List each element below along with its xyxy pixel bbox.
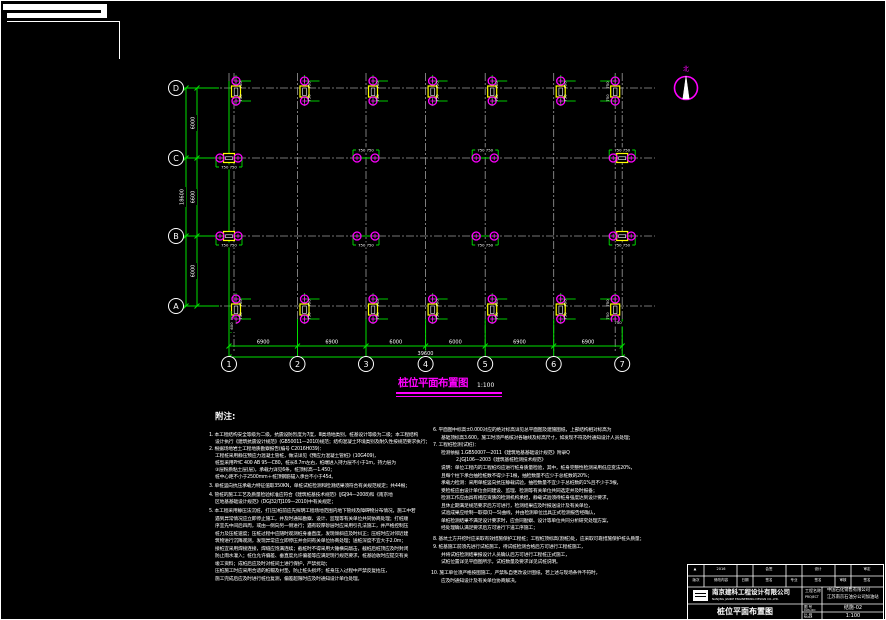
title-block-cell-text: 签名: [864, 579, 871, 583]
dim-total: 18600: [180, 189, 186, 205]
note-line: 基础顶标高3.600，施工时须严格核对各轴线及标高尺寸，如发现不符及时通知设计人…: [441, 437, 633, 442]
grid-bubble-label: 1: [226, 360, 231, 369]
note-line: 承载力检测：采用单桩竖向抗压静载试验，抽检数量不宜少于总桩数的1%且不少于3根，: [441, 482, 621, 487]
note-line: 并将试桩检测结果报设计人员确认后方可进行工程桩正式施工，: [441, 554, 570, 559]
note-line: 4. 管桩的施工工艺及质量检验标准应符合《建筑桩基技术规范》(JGJ94—200…: [209, 494, 393, 499]
dim-value: 6000: [191, 265, 197, 278]
note-line: 2. 根据场地岩土工程地质勘察报告(编号 C2016H039)：: [209, 448, 324, 453]
note-line: 桩力及压桩速度；压桩过程中应随时观测桩身垂直度，发现倾斜应及时纠正；压桩时应对邻…: [215, 533, 408, 538]
note-line: 试验成果应绘制—取得(Q—S)曲线，并由检测单位出具正式检测报告经确认，: [441, 512, 598, 517]
pile-dim-value: 750 750: [614, 148, 630, 153]
dim-value: 6000: [191, 117, 197, 130]
pile-dim-value: 750: [563, 94, 568, 102]
title-block: 南京建科工程设计有限公司 NANJING JIANKE ENGINEERING …: [687, 564, 884, 620]
note-line: 应及时通知设计及有关单位协商解决。: [441, 580, 519, 585]
note-line: 1. 本工程结构安全等级为二级，抗震设防烈度为7度，Ⅲ类场地类别，桩基设计等级为…: [209, 434, 418, 439]
pile-dim-value: 750 750: [358, 243, 374, 248]
axis-bubble-label: D: [173, 84, 179, 93]
edge-dim-value: 600: [229, 322, 234, 330]
scale-label-en: SCALE: [804, 617, 812, 620]
dim-value: 6000: [389, 340, 402, 346]
pile-cap: [617, 232, 628, 241]
pile-dim-value: 750: [307, 312, 312, 320]
pile-dim-value: 750: [307, 81, 312, 89]
note-line: 单桩检测结果不满足设计要求时，应会同勘察、设计等单位共同分析研究处理方案，: [441, 520, 611, 525]
note-line: 检测依据 1.GB50007—2011《建筑地基基础设计规范》附录Q: [441, 452, 570, 457]
pile-dim-value: 750: [435, 81, 440, 89]
note-line: 区地基基础设计规范》(DGJ32/TJ109—2010)中有关规定；: [215, 501, 336, 506]
note-line: 说明：单位工程内的工程桩均应进行桩身质量检验，其中，桩身完整性检测采用低应变法2…: [441, 467, 635, 472]
pile-dim-value: 750: [605, 299, 610, 307]
project-name-line1: 中国石化销售有限公司: [827, 589, 870, 593]
note-line: 施工完成后应及时进行桩位复测，偏差超限时应及时通知设计单位处理。: [215, 578, 362, 583]
pile-dim-value: 750: [435, 312, 440, 320]
title-block-cell-text: 审核: [840, 579, 847, 583]
dwg-no-value: 结施-02: [824, 606, 882, 611]
note-line: 3. 单桩竖向抗压承载力特征值取350KN，单桩试桩检测和检测结果须符合有关规范…: [209, 485, 410, 490]
pile-dim-value: 750 750: [221, 243, 237, 248]
pile-dim-value: 750: [238, 81, 243, 89]
plan-title-underline-1: [396, 392, 502, 394]
pile-dim-value: 750: [563, 81, 568, 89]
note-line: 8. 基坑土方开挖时应采取有效措施保护工程桩；工程桩顶标高(割桩)处，应采取可靠…: [433, 538, 644, 543]
axis-bubble-label: B: [173, 232, 179, 241]
dwg-no-label-en: DWG.NO: [804, 610, 815, 613]
dim-value: 6900: [257, 340, 270, 346]
pile-dim-value: 750: [375, 299, 380, 307]
project-label: 工程名称: [805, 589, 821, 593]
note-line: 序宜先中间后四周，或由一侧向另一侧进行；遇有较厚砂层时应采用引孔法施工，并严格控…: [215, 525, 408, 530]
note-line: 遇到异常情况应立即停止施工，并及时通知勘察、设计、监理等有关单位共同协商处理；打…: [215, 518, 408, 523]
scale-value: 1:100: [824, 614, 882, 619]
axis-bubble-label: C: [173, 154, 179, 163]
pile-dim-value: 750: [605, 81, 610, 89]
project-label-en: PROJECT: [805, 596, 819, 599]
note-line: 防止雨水灌入；桩位允许偏差、垂直度允许偏差等应满足现行规范要求，桩基验收时应提交…: [215, 555, 408, 560]
title-block-cell-text: 日期: [742, 579, 749, 583]
pile-dim-value: 750 750: [477, 243, 493, 248]
title-block-cell-text: 修改内容: [714, 579, 728, 583]
grid-bubble-label: 7: [620, 360, 625, 369]
notes-header: 附注:: [215, 413, 235, 422]
company-logo-slit: [695, 593, 706, 594]
note-line: 且休止期满足规范要求后方可进行，检测结果应及时报送设计及有关单位，: [441, 505, 593, 510]
note-line: 2.JGJ106—2003《建筑基桩检测技术规范》: [456, 459, 546, 464]
pile-dim-value: 750: [435, 94, 440, 102]
dim-value: 6900: [582, 340, 595, 346]
note-line: 7. 工程桩检测(试桩)：: [433, 444, 479, 449]
grid-bubble-label: 2: [295, 360, 300, 369]
note-line: 桩型采用PHC 400 AB 95—C80，桩长8.7m左右，桩端进入持力层不小…: [215, 462, 396, 467]
pile-cap: [617, 154, 628, 163]
pile-dim-value: 750: [605, 94, 610, 102]
pile-dim-value: 750 750: [358, 148, 374, 153]
pile-dim-value: 750: [238, 312, 243, 320]
pile-dim-value: 750 750: [221, 165, 237, 170]
pile-dim-value: 750: [375, 81, 380, 89]
pile-dim-value: 750: [307, 299, 312, 307]
title-block-cell-text: 设计: [815, 568, 822, 572]
note-line: 压桩施工时应采用合适的桩帽及衬垫，防止桩头损坏；桩身压入过程中严禁反复抬压，: [215, 570, 390, 575]
pile-dim-value: 750: [375, 312, 380, 320]
note-line: 受检桩应由设计单位会同建设、监理、检测等有关单位共同选定并及时报备；: [441, 490, 597, 495]
pile-dim-value: 750: [435, 299, 440, 307]
note-line: ③层粉质粘土层(层)，承载力详见6条，桩顶标高—1.450；: [215, 469, 335, 474]
title-block-cell-text: 会签: [766, 568, 773, 572]
dim-value: 6600: [191, 191, 197, 204]
pile-dim-value: 750: [605, 312, 610, 320]
north-label: 北: [683, 65, 689, 73]
dim-value: 6900: [513, 340, 526, 346]
pile-dim-value: 750: [238, 94, 243, 102]
title-block-cell-text: 签名: [766, 579, 773, 583]
plan-title-scale: 1:100: [477, 383, 494, 389]
pile-dim-value: 750: [375, 94, 380, 102]
title-block-cell-text: 专业: [791, 579, 798, 583]
title-block-cell-text: 2016: [717, 568, 726, 572]
pile-dim-value: 750: [238, 299, 243, 307]
pile-dim-value: 750: [494, 312, 499, 320]
axis-bubble-label: A: [173, 302, 179, 311]
title-block-cell-text: 审定: [864, 568, 871, 572]
pile-dim-value: 750: [494, 299, 499, 307]
grid-bubble-label: 6: [551, 360, 556, 369]
note-line: 10. 施工单位须严格按图施工，严禁私自更改设计图纸，若上述与现场条件不符时，: [431, 572, 600, 577]
cad-sheet[interactable]: 6900690060006000690069003960060006600600…: [0, 0, 886, 620]
north-arrow-needle: [683, 76, 689, 99]
note-line: 接桩宜采用焊接连接，焊缝应饱满连续；截桩时不得采用大锤横向敲击，截桩后桩顶应及时…: [215, 548, 408, 553]
plan-title-underline-2: [396, 396, 502, 397]
note-line: 9. 桩基施工前须先进行试桩施工，待试桩检测合格后方可进行工程桩施工，: [433, 546, 586, 551]
pile-dim-value: 750: [307, 94, 312, 102]
note-line: 检测工作应由具有相应资质的检测机构承担，静载试验须待桩身强度达到设计要求，: [441, 497, 611, 502]
grid-bubble-label: 4: [423, 360, 428, 369]
company-logo-slit2: [695, 596, 706, 597]
plan-title: 桩位平面布置图: [398, 378, 468, 389]
note-line: 桩中心距不小于2500mm＋桩顶钢筋锚入承台不小于45d。: [215, 476, 336, 481]
grid-bubble-label: 5: [483, 360, 488, 369]
note-line: 筑物进行沉降观测，发现异常应立即停压并会同有关单位协商处理；送桩深度不宜大于2.…: [215, 540, 406, 545]
pile-dim-value: 750 750: [477, 148, 493, 153]
pile-dim-value: 750: [563, 312, 568, 320]
note-line: 工程桩采用静压预应力混凝土管桩，做法详见《预应力混凝土管桩》(10G409)，: [215, 455, 379, 460]
pile-cap: [224, 154, 235, 163]
dim-value: 6000: [449, 340, 462, 346]
note-line: 竣工资料；成桩后应及时对桩间土进行保护，严禁扰动；: [215, 563, 330, 568]
pile-dim-value: 750: [494, 81, 499, 89]
note-line: 试桩位置详见平面图所示，试桩数量及要求详见试桩说明。: [441, 561, 561, 566]
pile-cap: [224, 232, 235, 241]
pile-dim-value: 750: [563, 299, 568, 307]
note-line: 6. 平面图中标高±0.000对应的绝对标高详见总平面图及建施图纸，上部结构相对…: [433, 429, 611, 434]
grid-bubble-label: 3: [363, 360, 368, 369]
dim-value: 6900: [325, 340, 338, 346]
note-line: 5. 本工程采用静压法沉桩，打(压)桩前应先探明工程场地范围内地下管线及障碍物分…: [209, 510, 416, 515]
edge-dim-value: 750: [614, 320, 622, 325]
title-block-cell-text: ▲: [694, 568, 697, 572]
project-name-line2: 江苏南京石油分公司加油站: [827, 596, 879, 600]
note-line: 经处理确认满足要求后方可进行下道工序施工；: [441, 527, 538, 532]
company-name: 南京建科工程设计有限公司: [712, 589, 790, 596]
titleblock-drawing-title: 桩位平面布置图: [688, 608, 802, 616]
note-line: 设计执行《建筑抗震设计规范》(GB50011—2010)规范；结构混凝土环境类别…: [215, 441, 430, 446]
company-name-en: NANJING JIANKE ENGINEERING DESIGN CO.,LT…: [712, 598, 779, 601]
pile-dim-value: 750: [494, 94, 499, 102]
note-line: 且每个柱下承台抽检桩数不得少于1根，抽检数量不应少于总桩数的20%；: [441, 475, 592, 480]
title-block-cell-text: 版次: [693, 579, 700, 583]
title-block-cell-text: 签名: [815, 579, 822, 583]
pile-dim-value: 750 750: [614, 243, 630, 248]
